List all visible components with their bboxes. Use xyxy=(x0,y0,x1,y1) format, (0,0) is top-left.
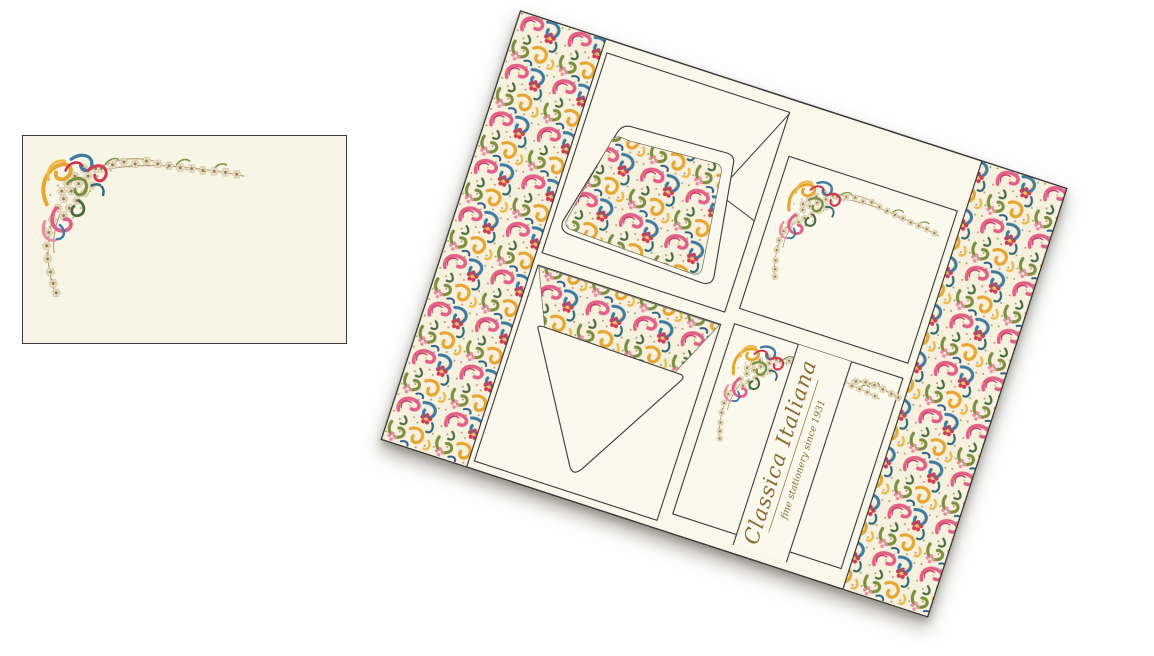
flat-card-art xyxy=(23,136,346,343)
flat-note-card xyxy=(22,135,347,344)
product-photo: Classica Italiana fine stationery since … xyxy=(0,0,1154,656)
floral-corner-ornament xyxy=(42,155,244,297)
box-art: Classica Italiana fine stationery since … xyxy=(380,10,1067,618)
stationery-box: Classica Italiana fine stationery since … xyxy=(380,10,1067,618)
